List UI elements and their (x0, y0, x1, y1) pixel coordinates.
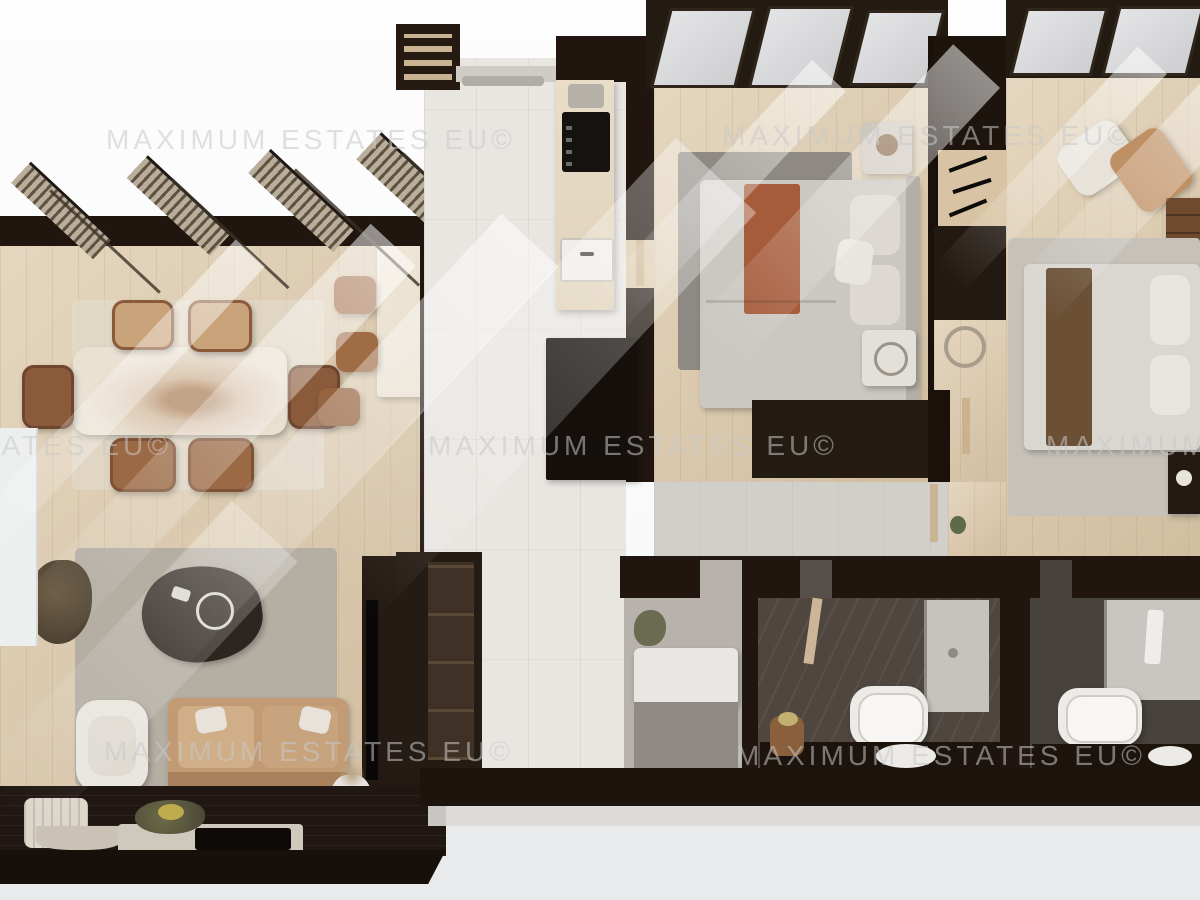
slab-edge (428, 806, 1200, 826)
bar-stool (334, 276, 376, 314)
closet-wall-segment (928, 390, 950, 482)
bedroom2-windows (1006, 0, 1200, 78)
duvet-fold (706, 300, 836, 303)
window-pane (1010, 8, 1109, 76)
bedroom-door-leaf (636, 240, 644, 286)
cooktop-knobs (566, 118, 572, 166)
bed-pillow (1150, 355, 1190, 415)
stool-flowers (778, 712, 798, 726)
corridor-door-leaf (930, 484, 938, 542)
terracotta-runner (744, 184, 800, 314)
coat-rail (462, 76, 544, 86)
closet-door-leaf (962, 398, 970, 454)
dining-chair (112, 300, 174, 350)
dining-chair (22, 365, 74, 429)
window-pane (1101, 6, 1200, 76)
brown-throw (1046, 268, 1092, 446)
dining-table (73, 347, 287, 435)
builtin-wardrobe (934, 36, 1006, 150)
bathtub-inner (1066, 695, 1138, 743)
bath-divider-wall (1000, 556, 1030, 772)
round-basket (944, 326, 986, 368)
terrace-outer-wall (0, 850, 446, 884)
builtin-wardrobe (934, 226, 1006, 320)
nightstand-lamp (876, 134, 898, 156)
nightstand-tray (874, 342, 908, 376)
hanger (949, 155, 988, 172)
kitchen-sink (560, 238, 614, 282)
window-pane (650, 8, 756, 88)
hanger-rack (938, 150, 1006, 226)
bar-stool (336, 332, 378, 372)
hanger (952, 178, 991, 194)
dining-chair (188, 438, 254, 492)
bedroom1-windows (646, 0, 948, 90)
laundry-counter (634, 648, 738, 706)
bathtub-inner (858, 693, 924, 745)
window-pane (748, 6, 854, 88)
wardrobe-interior (428, 562, 474, 760)
nightstand-lamp (1176, 470, 1192, 486)
sideboard (0, 428, 38, 646)
bed-pillow (1150, 275, 1190, 345)
terrace-bench (36, 826, 122, 850)
accent-pillow (833, 238, 875, 287)
entry-cabinet-slats (404, 34, 452, 80)
vanity-sink (876, 744, 936, 768)
laundry-plant (634, 610, 666, 646)
hanger (949, 199, 988, 218)
vanity-sink (1148, 746, 1192, 766)
bath2-door-gap (1040, 560, 1072, 598)
sink-faucet (580, 252, 594, 256)
bath1-door-gap (800, 560, 832, 598)
hall-storage-unit (546, 338, 638, 480)
bottom-outer-wall (420, 768, 1200, 806)
terrace-low-table (195, 828, 291, 850)
coffee-table-tray (196, 592, 234, 630)
apartment-floorplan-render: MAXIMUM ESTATES EU© MAXIMUM ESTATES EU© … (0, 0, 1200, 900)
laundry-door-gap (700, 560, 742, 598)
dining-chair (110, 438, 176, 492)
dining-chair (188, 300, 252, 352)
laundry-cabinet (634, 702, 738, 768)
laundry-bath-wall (742, 556, 758, 772)
bar-stool (318, 388, 360, 426)
corridor-plant (950, 516, 966, 534)
shower-drain (948, 648, 958, 658)
armchair-cushion (88, 716, 136, 776)
bedroom1-console (752, 400, 948, 478)
tv-screen (366, 600, 378, 780)
coffee-machine (568, 84, 604, 108)
terrace-flowers (158, 804, 184, 820)
